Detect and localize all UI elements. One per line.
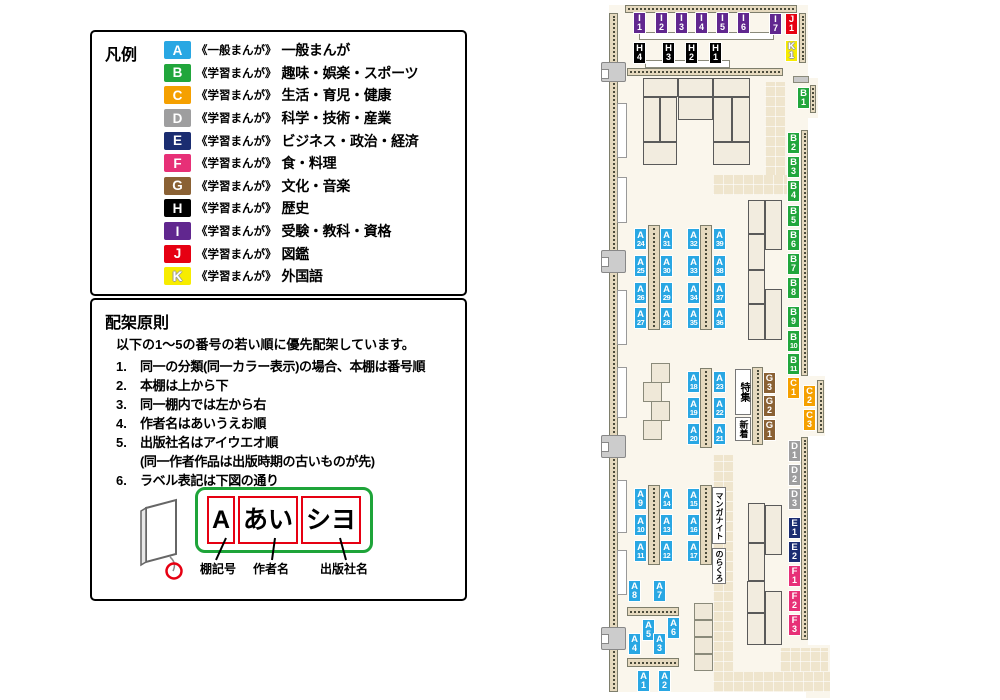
shelf-block xyxy=(713,142,750,165)
shelf-label-G3: G3 xyxy=(763,372,776,394)
wall-shelf-strip xyxy=(627,658,679,667)
shelf-label-B5: B5 xyxy=(787,205,800,227)
shelf-label-F2: F2 xyxy=(788,590,801,612)
table-block xyxy=(643,420,662,440)
wall-shelf-strip xyxy=(627,68,783,76)
shelf-block xyxy=(713,78,750,97)
door xyxy=(601,62,626,82)
shelf-block xyxy=(748,304,765,340)
shelf-label-D3: D3 xyxy=(788,488,801,510)
shelf-label-I7: I7 xyxy=(769,13,782,35)
shelf-block xyxy=(660,97,677,142)
table-block xyxy=(694,654,713,671)
shelf-label-A35: A35 xyxy=(687,307,700,329)
shelf-label-B4: B4 xyxy=(787,180,800,202)
shelf-label-A24: A24 xyxy=(634,228,647,250)
table-block xyxy=(694,620,713,637)
window xyxy=(617,290,627,345)
shelf-label-H2: H2 xyxy=(685,42,698,64)
door xyxy=(601,250,626,273)
shelf-block xyxy=(678,97,713,120)
shelf-label-A13: A13 xyxy=(660,514,673,536)
shelf-label-A36: A36 xyxy=(713,307,726,329)
shelf-label-A8: A8 xyxy=(628,580,641,602)
shelf-label-A9: A9 xyxy=(634,488,647,510)
shelf-block xyxy=(747,581,765,613)
shelf-label-B2: B2 xyxy=(787,132,800,154)
shelf-label-A17: A17 xyxy=(687,540,700,562)
shelf-label-I5: I5 xyxy=(716,12,729,34)
wall-shelf-strip xyxy=(817,380,824,433)
shelf-label-J1: J1 xyxy=(785,13,798,35)
shelf-block xyxy=(765,505,782,555)
window xyxy=(617,177,627,223)
shelf-label-H3: H3 xyxy=(662,42,675,64)
shelf-label-A15: A15 xyxy=(687,488,700,510)
shelf-label-E2: E2 xyxy=(788,541,801,563)
shelf-label-B8: B8 xyxy=(787,277,800,299)
walkway xyxy=(713,672,830,692)
shelf-label-A19: A19 xyxy=(687,397,700,419)
shelf-label-H4: H4 xyxy=(633,42,646,64)
table-block xyxy=(694,603,713,620)
shelf-block xyxy=(643,97,660,142)
shelf-block xyxy=(765,591,782,645)
shelf-label-D1: D1 xyxy=(788,440,801,462)
shelf-block xyxy=(678,78,713,97)
shelf-label-A10: A10 xyxy=(634,514,647,536)
manga-night-box: マンガナイト xyxy=(712,487,726,544)
shelf-label-A12: A12 xyxy=(660,540,673,562)
shelf-block xyxy=(748,270,765,304)
table-block xyxy=(643,382,662,402)
wall-shelf-strip xyxy=(625,5,797,13)
shelf-label-F3: F3 xyxy=(788,614,801,636)
window xyxy=(617,550,627,595)
window xyxy=(617,103,627,158)
shelf-label-A22: A22 xyxy=(713,397,726,419)
shelf-label-I1: I1 xyxy=(633,12,646,34)
shelf-block xyxy=(732,97,750,142)
shelf-label-B1: B1 xyxy=(797,87,810,109)
shelf-label-A11: A11 xyxy=(634,540,647,562)
window xyxy=(617,367,627,418)
table-block xyxy=(651,401,670,421)
shelf-label-I6: I6 xyxy=(737,12,750,34)
wall-shelf-strip xyxy=(627,607,679,616)
shelf-label-A39: A39 xyxy=(713,228,726,250)
shelf-label-A2: A2 xyxy=(658,670,671,692)
wall-shelf-strip xyxy=(801,437,808,640)
door-notch xyxy=(601,634,609,644)
new-arrivals-box: 新着 xyxy=(735,417,751,441)
shelf-label-A25: A25 xyxy=(634,255,647,277)
wall-shelf-strip xyxy=(700,368,712,448)
shelf-label-H1: H1 xyxy=(709,42,722,64)
wall-shelf-strip xyxy=(799,13,806,63)
shelf-label-A37: A37 xyxy=(713,282,726,304)
shelf-label-C2: C2 xyxy=(803,385,816,407)
shelf-label-A4: A4 xyxy=(628,633,641,655)
shelf-label-G2: G2 xyxy=(763,395,776,417)
wall-shelf-strip xyxy=(648,485,660,565)
door-notch xyxy=(601,69,609,79)
shelf-label-C1: C1 xyxy=(787,377,800,399)
walkway xyxy=(765,82,785,177)
shelf-label-F1: F1 xyxy=(788,565,801,587)
shelf-label-B11: B11 xyxy=(787,353,800,375)
table-block xyxy=(694,637,713,654)
shelf-label-A30: A30 xyxy=(660,255,673,277)
shelf-label-B7: B7 xyxy=(787,253,800,275)
shelf-label-A6: A6 xyxy=(667,617,680,639)
wall-shelf-strip xyxy=(810,85,816,113)
shelf-label-B6: B6 xyxy=(787,229,800,251)
door-notch xyxy=(601,257,609,267)
shelf-label-A32: A32 xyxy=(687,228,700,250)
shelf-block xyxy=(765,200,782,250)
shelf-label-B3: B3 xyxy=(787,156,800,178)
shelf-label-A18: A18 xyxy=(687,371,700,393)
shelf-block xyxy=(765,289,782,340)
wall-step xyxy=(793,76,809,83)
door-notch xyxy=(601,442,609,452)
wall-shelf-strip xyxy=(648,225,660,330)
wall-shelf-strip xyxy=(700,225,712,330)
shelf-label-A23: A23 xyxy=(713,371,726,393)
shelf-label-A3: A3 xyxy=(653,633,666,655)
shelf-label-A7: A7 xyxy=(653,580,666,602)
shelf-label-A1: A1 xyxy=(637,670,650,692)
floor-map: I1I2I3I4I5I6I7J1K1H4H3H2H1B1B2B3B4B5B6B7… xyxy=(0,0,1000,700)
shelf-label-A28: A28 xyxy=(660,307,673,329)
shelf-label-G1: G1 xyxy=(763,419,776,441)
shelf-label-C3: C3 xyxy=(803,409,816,431)
door xyxy=(601,435,626,458)
shelf-label-I3: I3 xyxy=(675,12,688,34)
shelf-label-A38: A38 xyxy=(713,255,726,277)
shelf-label-I2: I2 xyxy=(655,12,668,34)
shelf-block xyxy=(748,543,765,581)
shelf-label-A29: A29 xyxy=(660,282,673,304)
shelf-label-A16: A16 xyxy=(687,514,700,536)
shelf-label-A26: A26 xyxy=(634,282,647,304)
shelf-block xyxy=(748,234,765,270)
shelf-label-I4: I4 xyxy=(695,12,708,34)
shelf-block xyxy=(643,142,677,165)
shelf-label-A14: A14 xyxy=(660,488,673,510)
shelf-label-B9: B9 xyxy=(787,306,800,328)
shelf-block xyxy=(748,503,765,543)
shelf-block xyxy=(713,97,732,142)
shelf-label-A20: A20 xyxy=(687,423,700,445)
shelf-label-A21: A21 xyxy=(713,423,726,445)
shelf-label-A33: A33 xyxy=(687,255,700,277)
shelf-block xyxy=(748,200,765,234)
window xyxy=(617,480,627,533)
shelf-label-A31: A31 xyxy=(660,228,673,250)
door xyxy=(601,627,626,650)
shelf-label-E1: E1 xyxy=(788,517,801,539)
shelf-label-A34: A34 xyxy=(687,282,700,304)
shelf-block xyxy=(747,613,765,645)
wall-shelf-strip xyxy=(801,130,808,376)
shelf-block xyxy=(643,78,678,97)
wall-shelf-strip xyxy=(752,367,763,445)
feature-box: 特集 xyxy=(735,369,751,415)
wall-shelf-strip xyxy=(700,485,712,565)
shelf-label-A27: A27 xyxy=(634,307,647,329)
walkway xyxy=(780,648,828,672)
shelf-label-B10: B10 xyxy=(787,330,800,352)
shelf-label-D2: D2 xyxy=(788,464,801,486)
shelf-label-K1: K1 xyxy=(785,40,798,62)
walkway xyxy=(713,175,787,195)
norakuro-box: のらくろ xyxy=(712,548,726,584)
table-block xyxy=(651,363,670,383)
